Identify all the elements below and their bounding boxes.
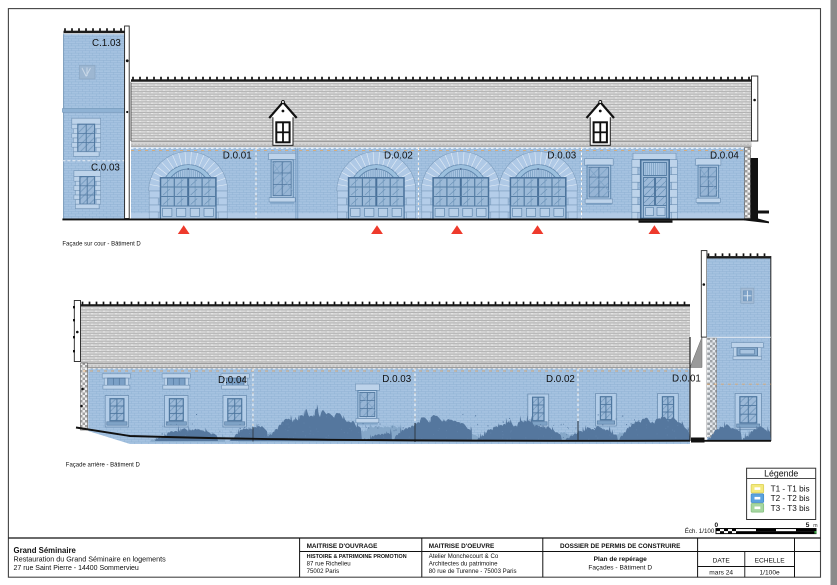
svg-text:m: m xyxy=(813,523,817,529)
svg-text:mars 24: mars 24 xyxy=(709,569,733,576)
svg-text:D.0.03: D.0.03 xyxy=(547,151,576,162)
svg-text:D.0.04: D.0.04 xyxy=(710,151,739,162)
svg-text:DOSSIER DE PERMIS DE CONSTRUIR: DOSSIER DE PERMIS DE CONSTRUIRE xyxy=(560,543,681,550)
svg-text:5: 5 xyxy=(806,522,810,529)
svg-text:Façade sur cour - Bâtiment D: Façade sur cour - Bâtiment D xyxy=(62,242,141,248)
svg-text:D.0.03: D.0.03 xyxy=(382,374,411,385)
svg-text:T2 - T2 bis: T2 - T2 bis xyxy=(771,494,810,503)
svg-text:MAITRISE D'OUVRAGE: MAITRISE D'OUVRAGE xyxy=(307,543,378,550)
svg-text:MAITRISE D'OEUVRE: MAITRISE D'OEUVRE xyxy=(429,543,495,550)
svg-text:Restauration du Grand Séminair: Restauration du Grand Séminaire en logem… xyxy=(14,555,167,564)
svg-text:D.0.04: D.0.04 xyxy=(218,375,247,386)
svg-text:Façade arrière - Bâtiment D: Façade arrière - Bâtiment D xyxy=(66,463,141,469)
svg-text:Éch. 1/100: Éch. 1/100 xyxy=(685,528,715,535)
svg-text:C.1.03: C.1.03 xyxy=(92,38,121,49)
svg-text:D.0.01: D.0.01 xyxy=(223,151,252,162)
svg-text:Architectes du patrimoine: Architectes du patrimoine xyxy=(429,560,498,567)
svg-text:Façades - Bâtiment D: Façades - Bâtiment D xyxy=(588,565,652,572)
svg-text:T1 - T1 bis: T1 - T1 bis xyxy=(771,485,810,494)
svg-text:D.0.01: D.0.01 xyxy=(672,374,701,385)
svg-text:75002 Paris: 75002 Paris xyxy=(307,568,340,575)
svg-text:Plan de repérage: Plan de repérage xyxy=(594,556,647,563)
svg-text:D.0.02: D.0.02 xyxy=(384,151,413,162)
svg-text:HISTOIRE & PATRIMOINE PROMOTIO: HISTOIRE & PATRIMOINE PROMOTION xyxy=(307,554,407,560)
svg-text:D.0.02: D.0.02 xyxy=(546,374,575,385)
svg-text:80 rue de Turenne - 75003 Pari: 80 rue de Turenne - 75003 Paris xyxy=(429,568,517,575)
svg-text:0: 0 xyxy=(715,522,719,529)
svg-text:C.0.03: C.0.03 xyxy=(91,163,120,174)
svg-text:1/100e: 1/100e xyxy=(760,569,781,576)
svg-text:T3 - T3 bis: T3 - T3 bis xyxy=(771,504,810,513)
svg-text:27 rue Saint Pierre - 14400 So: 27 rue Saint Pierre - 14400 Sommervieu xyxy=(14,565,139,572)
svg-text:87 rue Richelieu: 87 rue Richelieu xyxy=(307,560,351,567)
svg-text:Atelier Monchecourt & Co: Atelier Monchecourt & Co xyxy=(429,553,499,560)
svg-text:Légende: Légende xyxy=(764,468,798,478)
svg-text:ECHELLE: ECHELLE xyxy=(755,557,786,564)
svg-text:DATE: DATE xyxy=(713,557,731,564)
